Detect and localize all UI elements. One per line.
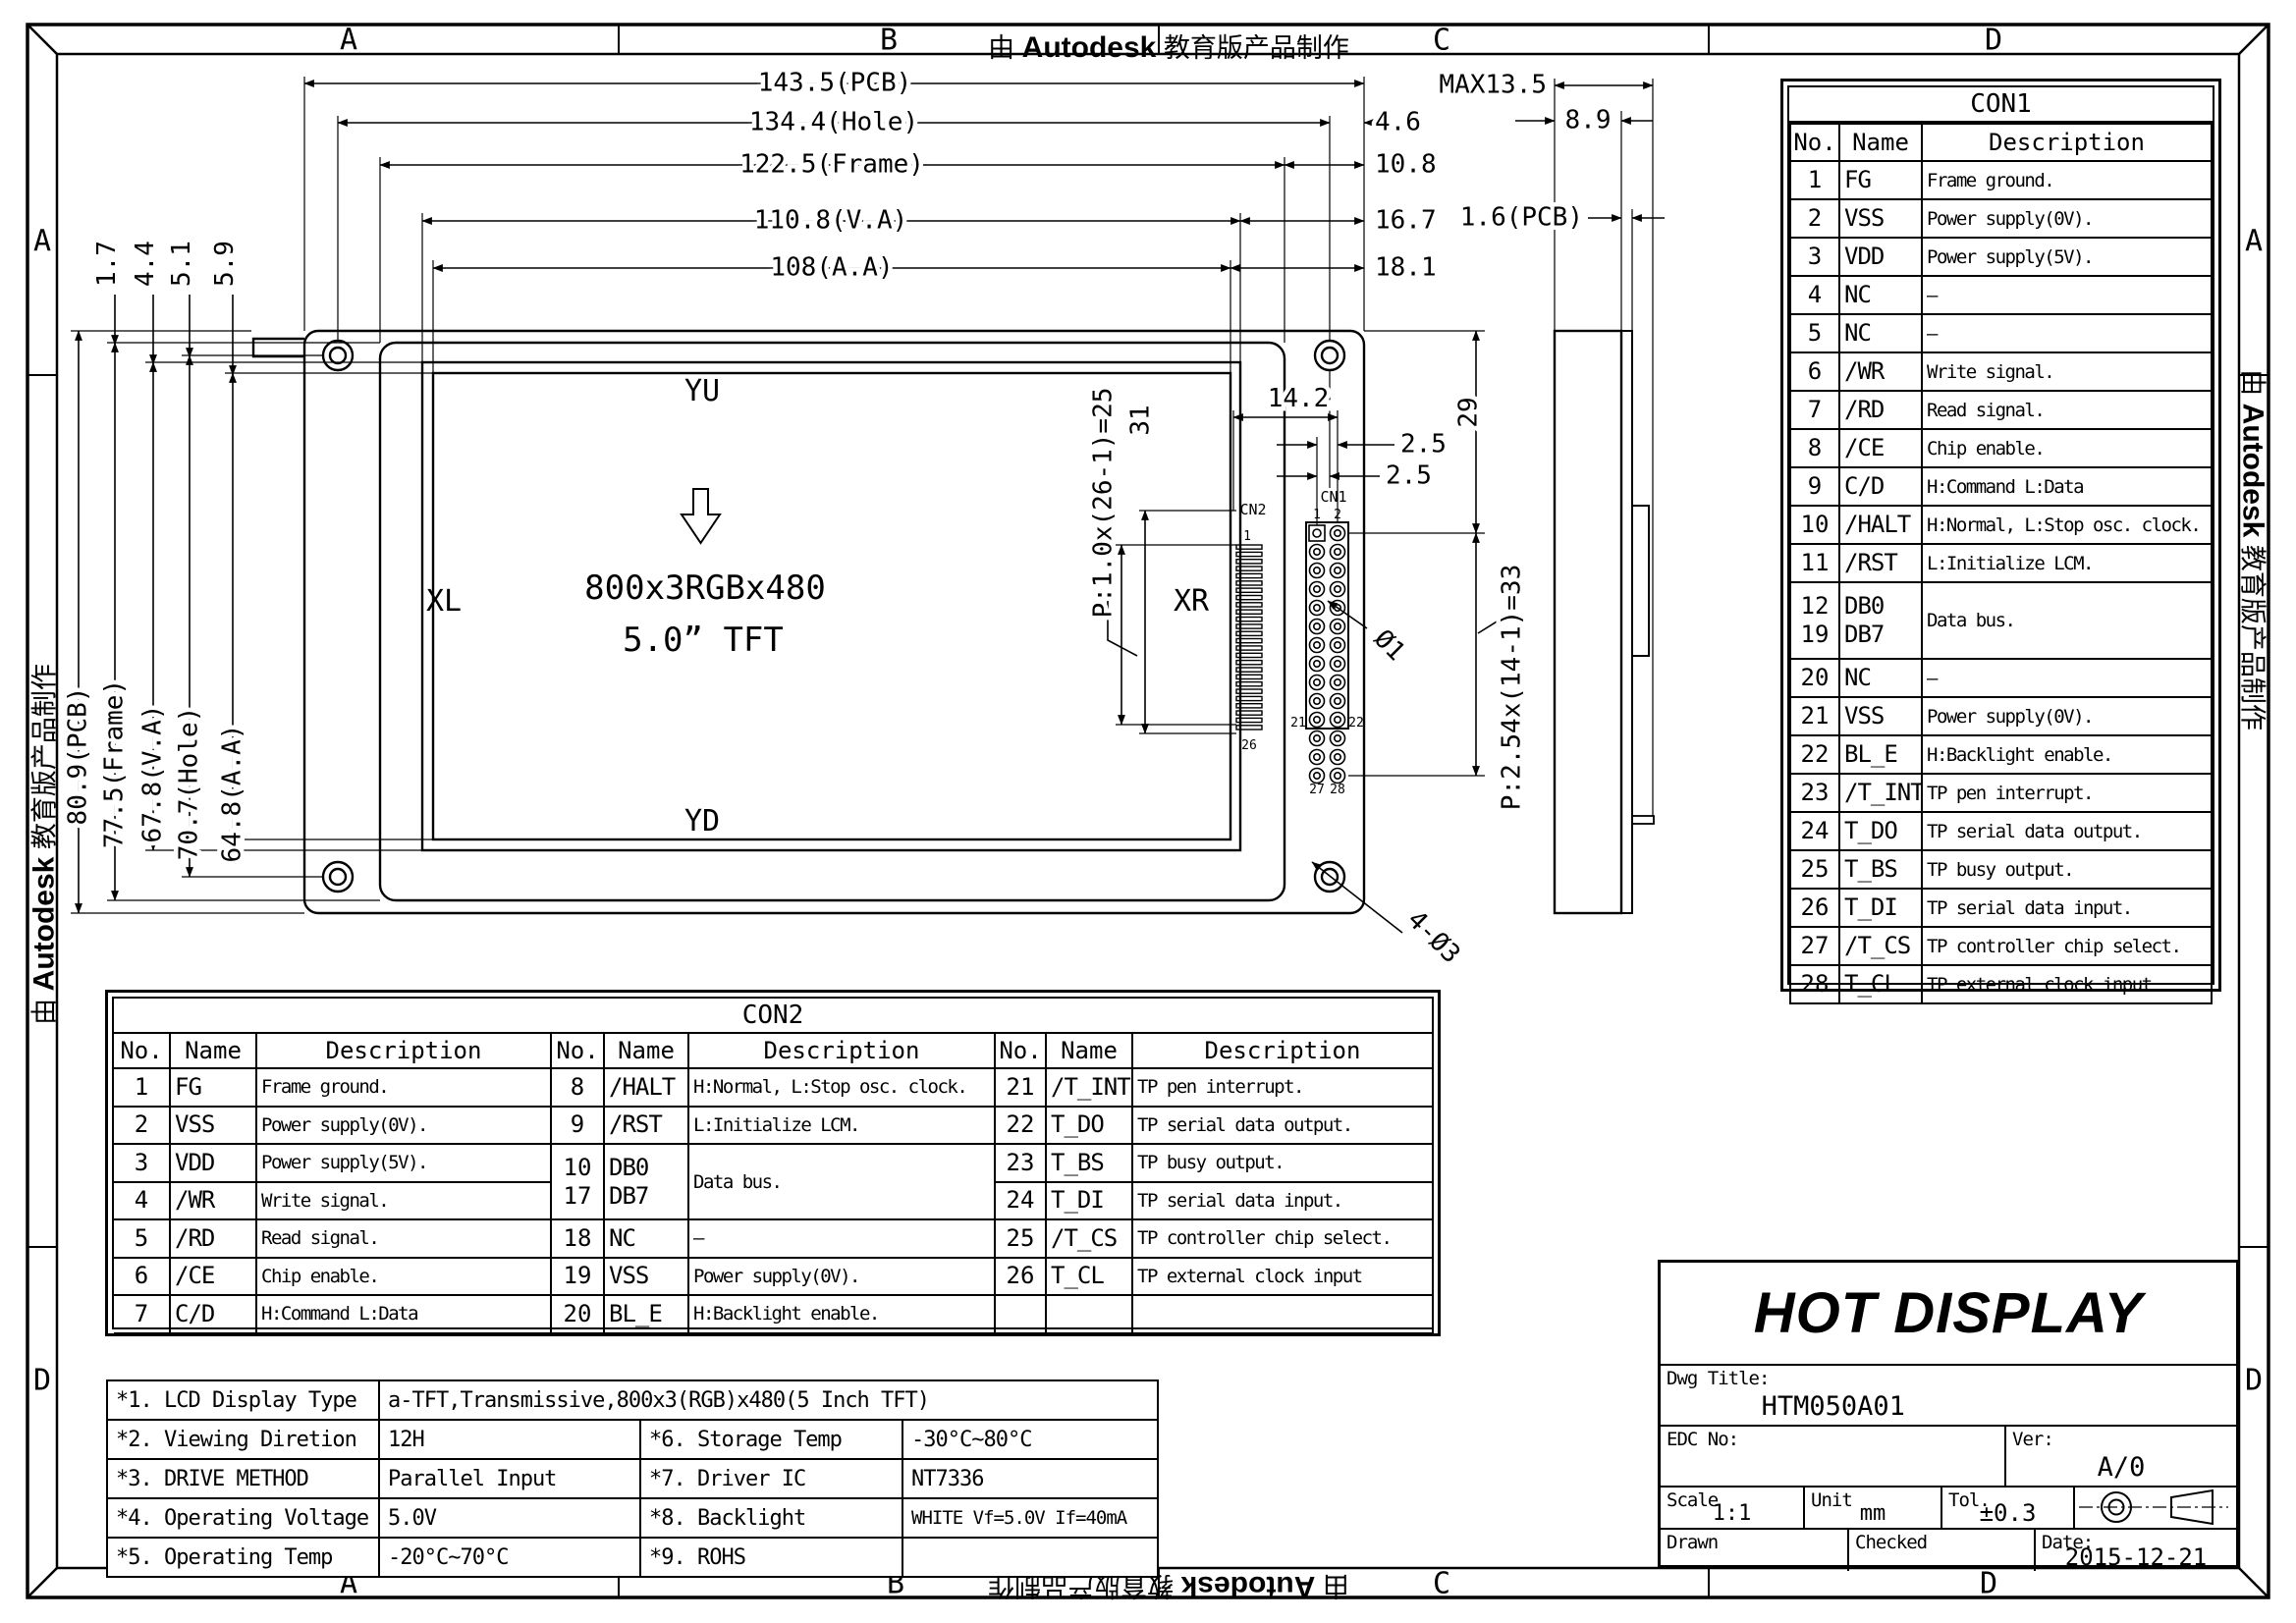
- notes-row: *3. DRIVE METHODParallel Input*7. Driver…: [107, 1459, 1158, 1498]
- dim-4-6: 4.6: [1375, 108, 1421, 137]
- date-value: 2015-12-21: [2036, 1543, 2236, 1571]
- projection-symbol-cell: [2075, 1488, 2236, 1528]
- con2-cell: /RD: [171, 1220, 257, 1259]
- con2-cell: T_BS: [1047, 1145, 1133, 1183]
- con2-cell: 2: [114, 1108, 171, 1146]
- pcb-outline: [304, 331, 1364, 913]
- notes-cell: -30°C~80°C: [902, 1420, 1158, 1459]
- con2-cell: 7: [114, 1296, 171, 1334]
- con2-cell: T_DI: [1047, 1183, 1133, 1221]
- dim-pitch-254: P:2.54x(14-1)=33: [1498, 565, 1527, 810]
- con2-cell: Write signal.: [257, 1183, 552, 1221]
- dim-29: 29: [1454, 397, 1484, 427]
- con2-cell: Frame ground.: [257, 1069, 552, 1108]
- con2-cell: 1: [114, 1069, 171, 1108]
- con1-cell: H:Normal, L:Stop osc. clock.: [1922, 506, 2212, 544]
- tolerance-value: ±0.3: [1942, 1499, 2073, 1527]
- con1-cell: —: [1922, 314, 2212, 352]
- con1-row: 3VDDPower supply(5V).: [1790, 238, 2212, 276]
- con2-cell: T_CL: [1047, 1259, 1133, 1297]
- dim-frame-height: 77.5(Frame): [100, 679, 130, 848]
- con1-cell: Read signal.: [1922, 391, 2212, 429]
- dim-5-9: 5.9: [210, 241, 240, 287]
- cn2-pin-last: 26: [1241, 738, 1257, 753]
- zone-top-d: D: [1985, 24, 2002, 58]
- dim-1-7: 1.7: [92, 241, 122, 287]
- con1-cell: TP busy output.: [1922, 850, 2212, 889]
- con2-cell: 19: [552, 1259, 605, 1297]
- con2-cell: 5: [114, 1220, 171, 1259]
- con1-row: 11/RSTL:Initialize LCM.: [1790, 544, 2212, 582]
- con1-cell: 22: [1790, 735, 1839, 774]
- dim-dia-1: Ø1: [1368, 624, 1410, 667]
- dwg-title-label: Dwg Title:: [1667, 1368, 1769, 1389]
- con1-cell: DB0 DB7: [1839, 582, 1922, 659]
- con2-cell: 25: [996, 1220, 1047, 1259]
- con1-pin-table: No. Name Description 1FGFrame ground.2VS…: [1789, 123, 2213, 1004]
- dim-31: 31: [1126, 405, 1156, 435]
- con1-title: CON1: [1789, 87, 2213, 123]
- con2-cell: —: [689, 1220, 996, 1259]
- leader-lines: [1108, 589, 1509, 933]
- con1-cell: TP serial data output.: [1922, 812, 2212, 850]
- cn1-pin-21: 21: [1290, 716, 1306, 730]
- con1-cell: 1: [1790, 161, 1839, 199]
- con2-cell: 3: [114, 1145, 171, 1183]
- con1-cell: H:Command L:Data: [1922, 467, 2212, 506]
- dim-4-dia-3: 4-Ø3: [1401, 905, 1465, 969]
- con1-header-no: No.: [1790, 124, 1839, 161]
- dim-2-5-a: 2.5: [1400, 430, 1447, 460]
- lcd-front-view: [253, 331, 1364, 913]
- con2-cell: Read signal.: [257, 1220, 552, 1259]
- con2-cell: VSS: [171, 1108, 257, 1146]
- con2-cell: H:Command L:Data: [257, 1296, 552, 1334]
- checked-cell: Checked: [1849, 1530, 2036, 1571]
- con2-cell: VDD: [171, 1145, 257, 1183]
- watermark-brand: Autodesk: [1022, 31, 1157, 64]
- company-logo: HOT DISPLAY: [1661, 1263, 2236, 1366]
- dim-10-8: 10.8: [1375, 150, 1437, 180]
- con2-cell: C/D: [171, 1296, 257, 1334]
- con2-cell: No.: [552, 1034, 605, 1069]
- notes-cell: -20°C~70°C: [379, 1538, 640, 1577]
- side-pcb: [1621, 331, 1632, 913]
- con2-cell: BL_E: [605, 1296, 689, 1334]
- con1-row: 27/T_CSTP controller chip select.: [1790, 927, 2212, 965]
- notes-cell: *7. Driver IC: [640, 1459, 902, 1498]
- con1-cell: —: [1922, 659, 2212, 697]
- con1-cell: —: [1922, 276, 2212, 314]
- dwg-title-cell: Dwg Title: HTM050A01: [1661, 1366, 2236, 1425]
- con2-cell: 26: [996, 1259, 1047, 1297]
- label-panel-size: 5.0” TFT: [623, 621, 784, 660]
- con1-cell: 21: [1790, 697, 1839, 735]
- con1-row: 12 19DB0 DB7Data bus.: [1790, 582, 2212, 659]
- dim-14-2: 14.2: [1268, 384, 1330, 413]
- dim-pcb-height: 80.9(PCB): [64, 687, 93, 826]
- zone-right-d: D: [2245, 1364, 2263, 1398]
- con2-cell: TP external clock input: [1133, 1259, 1434, 1297]
- con1-cell: 24: [1790, 812, 1839, 850]
- notes-row: *1. LCD Display Typea-TFT,Transmissive,8…: [107, 1380, 1158, 1420]
- unit-value: mm: [1805, 1501, 1941, 1526]
- con1-cell: /RST: [1839, 544, 1922, 582]
- con1-cell: 6: [1790, 352, 1839, 391]
- spec-notes-table: *1. LCD Display Typea-TFT,Transmissive,8…: [106, 1380, 1159, 1578]
- dim-hole-width: 134.4(Hole): [749, 108, 918, 137]
- con2-cell: Description: [257, 1034, 552, 1069]
- con2-cell: Description: [1133, 1034, 1434, 1069]
- dim-4-4: 4.4: [131, 241, 160, 287]
- con2-cell: [1133, 1296, 1434, 1334]
- con2-cell: VSS: [605, 1259, 689, 1297]
- dim-18-1: 18.1: [1375, 253, 1437, 283]
- con1-header-name: Name: [1839, 124, 1922, 161]
- dim-hole-height: 70.7(Hole): [175, 707, 204, 861]
- con2-table: CON2 No.NameDescription1FGFrame ground.2…: [105, 990, 1441, 1336]
- con1-row: 25T_BSTP busy output.: [1790, 850, 2212, 889]
- notes-row: *5. Operating Temp-20°C~70°C*9. ROHS: [107, 1538, 1158, 1577]
- con1-row: 2VSSPower supply(0V).: [1790, 199, 2212, 238]
- con2-cell: DB0 DB7: [605, 1145, 689, 1220]
- con2-cell: 24: [996, 1183, 1047, 1221]
- dim-max-thickness: MAX13.5: [1439, 71, 1547, 100]
- con1-cell: T_CL: [1839, 965, 1922, 1003]
- con1-cell: TP pen interrupt.: [1922, 774, 2212, 812]
- con1-row: 26T_DITP serial data input.: [1790, 889, 2212, 927]
- dim-aa-height: 64.8(A.A): [218, 725, 247, 863]
- notes-cell: *5. Operating Temp: [107, 1538, 379, 1577]
- con1-cell: 10: [1790, 506, 1839, 544]
- side-connector: [1632, 506, 1649, 656]
- projection-symbol-icon: [2075, 1488, 2232, 1527]
- dim-16-7: 16.7: [1375, 206, 1437, 236]
- con2-cell: [1047, 1296, 1133, 1334]
- con1-cell: TP external clock input: [1922, 965, 2212, 1003]
- version-cell: Ver: A/0: [2006, 1427, 2236, 1486]
- con1-row: 9C/DH:Command L:Data: [1790, 467, 2212, 506]
- con2-cell: /HALT: [605, 1069, 689, 1108]
- con1-row: 23/T_INTTP pen interrupt.: [1790, 774, 2212, 812]
- label-xr: XR: [1174, 584, 1210, 619]
- cn1-pin-22: 22: [1348, 716, 1364, 730]
- con2-cell: TP serial data output.: [1133, 1108, 1434, 1146]
- notes-row: *4. Operating Voltage5.0V*8. BacklightWH…: [107, 1498, 1158, 1538]
- con1-cell: T_DO: [1839, 812, 1922, 850]
- con2-cell: 18: [552, 1220, 605, 1259]
- dwg-title-value: HTM050A01: [1661, 1391, 2006, 1422]
- con1-row: 28T_CLTP external clock input: [1790, 965, 2212, 1003]
- dim-aa-width: 108(A.A): [770, 253, 893, 283]
- con1-cell: /RD: [1839, 391, 1922, 429]
- scale-value: 1:1: [1661, 1501, 1803, 1526]
- con1-cell: NC: [1839, 314, 1922, 352]
- label-resolution: 800x3RGBx480: [584, 568, 826, 608]
- dim-8-9: 8.9: [1565, 106, 1612, 135]
- con2-cell: Power supply(5V).: [257, 1145, 552, 1183]
- con2-cell: Name: [171, 1034, 257, 1069]
- con2-cell: 10 17: [552, 1145, 605, 1220]
- unit-cell: Unit mm: [1805, 1488, 1942, 1528]
- con1-cell: /HALT: [1839, 506, 1922, 544]
- con2-cell: No.: [996, 1034, 1047, 1069]
- notes-cell: a-TFT,Transmissive,800x3(RGB)x480(5 Inch…: [379, 1380, 1158, 1420]
- con1-cell: T_BS: [1839, 850, 1922, 889]
- con2-cell: TP busy output.: [1133, 1145, 1434, 1183]
- con1-cell: C/D: [1839, 467, 1922, 506]
- tolerance-cell: Tol. ±0.3: [1942, 1488, 2075, 1528]
- con1-cell: T_DI: [1839, 889, 1922, 927]
- con1-row: 10/HALTH:Normal, L:Stop osc. clock.: [1790, 506, 2212, 544]
- con2-cell: H:Normal, L:Stop osc. clock.: [689, 1069, 996, 1108]
- dim-2-5-b: 2.5: [1386, 461, 1432, 491]
- dimension-labels: 143.5(PCB) 134.4(Hole) 122.5(Frame) 110.…: [64, 69, 1612, 970]
- label-cn2: CN2: [1239, 501, 1266, 518]
- con2-cell: 20: [552, 1296, 605, 1334]
- notes-cell: 12H: [379, 1420, 640, 1459]
- con1-cell: 4: [1790, 276, 1839, 314]
- con1-cell: 5: [1790, 314, 1839, 352]
- zone-top-c: C: [1433, 24, 1450, 58]
- side-pins: [1632, 816, 1654, 824]
- con2-cell: 8: [552, 1069, 605, 1108]
- con2-cell: Description: [689, 1034, 996, 1069]
- date-cell: Date: 2015-12-21: [2036, 1530, 2236, 1571]
- con2-cell: 4: [114, 1183, 171, 1221]
- con1-cell: FG: [1839, 161, 1922, 199]
- cn2-pin-first: 1: [1243, 529, 1251, 544]
- con1-cell: Power supply(5V).: [1922, 238, 2212, 276]
- con2-cell: Power supply(0V).: [689, 1259, 996, 1297]
- con1-cell: Power supply(0V).: [1922, 199, 2212, 238]
- scale-cell: Scale 1:1: [1661, 1488, 1805, 1528]
- cn1-pin-2: 2: [1334, 508, 1341, 522]
- con2-title: CON2: [114, 999, 1432, 1034]
- con2-cell: /RST: [605, 1108, 689, 1146]
- notes-cell: *8. Backlight: [640, 1498, 902, 1538]
- notes-cell: *6. Storage Temp: [640, 1420, 902, 1459]
- con2-cell: TP pen interrupt.: [1133, 1069, 1434, 1108]
- notes-cell: *4. Operating Voltage: [107, 1498, 379, 1538]
- con2-cell: 21: [996, 1069, 1047, 1108]
- con1-cell: /T_CS: [1839, 927, 1922, 965]
- notes-row: *2. Viewing Diretion12H*6. Storage Temp-…: [107, 1420, 1158, 1459]
- orientation-arrow-icon: [682, 489, 720, 543]
- con1-row: 4NC—: [1790, 276, 2212, 314]
- con1-row: 20NC—: [1790, 659, 2212, 697]
- con1-cell: 7: [1790, 391, 1839, 429]
- con1-row: 7/RDRead signal.: [1790, 391, 2212, 429]
- pcb-tab: [253, 339, 304, 356]
- con1-header-row: No. Name Description: [1790, 124, 2212, 161]
- label-cn1: CN1: [1320, 488, 1346, 506]
- con1-cell: NC: [1839, 276, 1922, 314]
- watermark-text: 由: [988, 33, 1014, 63]
- con2-cell: Power supply(0V).: [257, 1108, 552, 1146]
- con1-cell: 12 19: [1790, 582, 1839, 659]
- con2-cell: Name: [605, 1034, 689, 1069]
- notes-cell: NT7336: [902, 1459, 1158, 1498]
- version-label: Ver:: [2012, 1429, 2053, 1450]
- dim-frame-width: 122.5(Frame): [739, 150, 924, 180]
- notes-cell: *2. Viewing Diretion: [107, 1420, 379, 1459]
- con1-cell: 27: [1790, 927, 1839, 965]
- con1-cell: Data bus.: [1922, 582, 2212, 659]
- con2-cell: No.: [114, 1034, 171, 1069]
- con2-cell: /T_CS: [1047, 1220, 1133, 1259]
- con2-cell: 9: [552, 1108, 605, 1146]
- con1-cell: BL_E: [1839, 735, 1922, 774]
- dim-pcb-width: 143.5(PCB): [758, 69, 912, 98]
- con1-cell: /WR: [1839, 352, 1922, 391]
- con1-row: 21VSSPower supply(0V).: [1790, 697, 2212, 735]
- con1-cell: VSS: [1839, 697, 1922, 735]
- label-yu: YU: [684, 374, 720, 408]
- notes-cell: WHITE Vf=5.0V If=40mA: [902, 1498, 1158, 1538]
- con1-cell: Power supply(0V).: [1922, 697, 2212, 735]
- company-name: HOT DISPLAY: [1754, 1280, 2144, 1346]
- con1-cell: /T_INT: [1839, 774, 1922, 812]
- edc-no-cell: EDC No:: [1661, 1427, 2006, 1486]
- con2-cell: 22: [996, 1108, 1047, 1146]
- con1-cell: Frame ground.: [1922, 161, 2212, 199]
- con1-cell: TP controller chip select.: [1922, 927, 2212, 965]
- cn1-pin-28: 28: [1330, 783, 1345, 797]
- con2-cell: 6: [114, 1259, 171, 1297]
- con1-cell: 20: [1790, 659, 1839, 697]
- con1-cell: H:Backlight enable.: [1922, 735, 2212, 774]
- con1-cell: 11: [1790, 544, 1839, 582]
- con1-cell: VSS: [1839, 199, 1922, 238]
- cn1-connector-outline: [1306, 522, 1348, 729]
- title-block: HOT DISPLAY Dwg Title: HTM050A01 EDC No:…: [1658, 1260, 2239, 1568]
- con1-cell: TP serial data input.: [1922, 889, 2212, 927]
- con1-cell: L:Initialize LCM.: [1922, 544, 2212, 582]
- notes-cell: [902, 1538, 1158, 1577]
- con2-cell: Name: [1047, 1034, 1133, 1069]
- con2-cell: L:Initialize LCM.: [689, 1108, 996, 1146]
- con2-cell: 23: [996, 1145, 1047, 1183]
- con1-table: CON1 No. Name Description 1FGFrame groun…: [1780, 79, 2221, 992]
- con1-cell: Chip enable.: [1922, 429, 2212, 467]
- label-yd: YD: [684, 804, 720, 839]
- side-body: [1555, 331, 1621, 913]
- con1-cell: 25: [1790, 850, 1839, 889]
- con2-cell: Data bus.: [689, 1145, 996, 1220]
- zone-left-d: D: [33, 1364, 51, 1398]
- label-xl: XL: [426, 584, 462, 619]
- con2-cell: /WR: [171, 1183, 257, 1221]
- con1-cell: 3: [1790, 238, 1839, 276]
- cn1-pin-27: 27: [1309, 783, 1325, 797]
- dim-va-height: 67.8(V.A): [138, 705, 168, 843]
- con1-cell: VDD: [1839, 238, 1922, 276]
- edc-no-label: EDC No:: [1667, 1429, 1738, 1450]
- watermark-text: 教育版产品制作: [1164, 33, 1349, 63]
- notes-cell: *9. ROHS: [640, 1538, 902, 1577]
- cn1-pin-holes: [1309, 525, 1345, 784]
- con2-cell: T_DO: [1047, 1108, 1133, 1146]
- drawing-sheet: A B C D A B C D A D A D: [0, 0, 2296, 1623]
- dim-pcb-thickness: 1.6(PCB): [1460, 203, 1583, 233]
- notes-cell: 5.0V: [379, 1498, 640, 1538]
- zone-bottom-c: C: [1433, 1567, 1450, 1601]
- zone-right-a: A: [2245, 225, 2263, 259]
- zone-top-a: A: [340, 24, 357, 58]
- dim-pitch-10: P:1.0x(26-1)=25: [1089, 388, 1119, 619]
- dim-5-1: 5.1: [167, 241, 196, 287]
- dim-va-width: 110.8(V.A): [754, 206, 908, 236]
- con1-row: 8/CEChip enable.: [1790, 429, 2212, 467]
- notes-cell: *1. LCD Display Type: [107, 1380, 379, 1420]
- con1-row: 24T_DOTP serial data output.: [1790, 812, 2212, 850]
- con2-pin-grid: No.NameDescription1FGFrame ground.2VSSPo…: [114, 1034, 1432, 1334]
- con2-cell: FG: [171, 1069, 257, 1108]
- watermark-top: 由 Autodesk 教育版产品制作: [923, 27, 1414, 65]
- notes-cell: Parallel Input: [379, 1459, 640, 1498]
- con1-cell: 28: [1790, 965, 1839, 1003]
- extension-lines: [71, 77, 1653, 913]
- con1-cell: 8: [1790, 429, 1839, 467]
- con1-row: 5NC—: [1790, 314, 2212, 352]
- con2-cell: Chip enable.: [257, 1259, 552, 1297]
- con2-cell: TP controller chip select.: [1133, 1220, 1434, 1259]
- con1-cell: 2: [1790, 199, 1839, 238]
- con2-cell: /T_INT: [1047, 1069, 1133, 1108]
- drawn-cell: Drawn: [1661, 1530, 1849, 1571]
- con1-row: 6/WRWrite signal.: [1790, 352, 2212, 391]
- lcd-side-view: [1555, 331, 1654, 913]
- con2-cell: [996, 1296, 1047, 1334]
- con1-cell: /CE: [1839, 429, 1922, 467]
- con2-cell: TP serial data input.: [1133, 1183, 1434, 1221]
- con2-cell: H:Backlight enable.: [689, 1296, 996, 1334]
- version-value: A/0: [2006, 1452, 2236, 1483]
- con1-row: 22BL_EH:Backlight enable.: [1790, 735, 2212, 774]
- con2-cell: /CE: [171, 1259, 257, 1297]
- notes-cell: *3. DRIVE METHOD: [107, 1459, 379, 1498]
- con1-cell: Write signal.: [1922, 352, 2212, 391]
- con1-cell: NC: [1839, 659, 1922, 697]
- zone-left-a: A: [33, 225, 51, 259]
- con1-cell: 23: [1790, 774, 1839, 812]
- con1-cell: 26: [1790, 889, 1839, 927]
- con1-header-desc: Description: [1922, 124, 2212, 161]
- con1-row: 1FGFrame ground.: [1790, 161, 2212, 199]
- zone-bottom-d: D: [1980, 1567, 1997, 1601]
- cn1-pin-1: 1: [1313, 508, 1321, 522]
- con1-cell: 9: [1790, 467, 1839, 506]
- zone-top-b: B: [880, 24, 898, 58]
- con2-cell: NC: [605, 1220, 689, 1259]
